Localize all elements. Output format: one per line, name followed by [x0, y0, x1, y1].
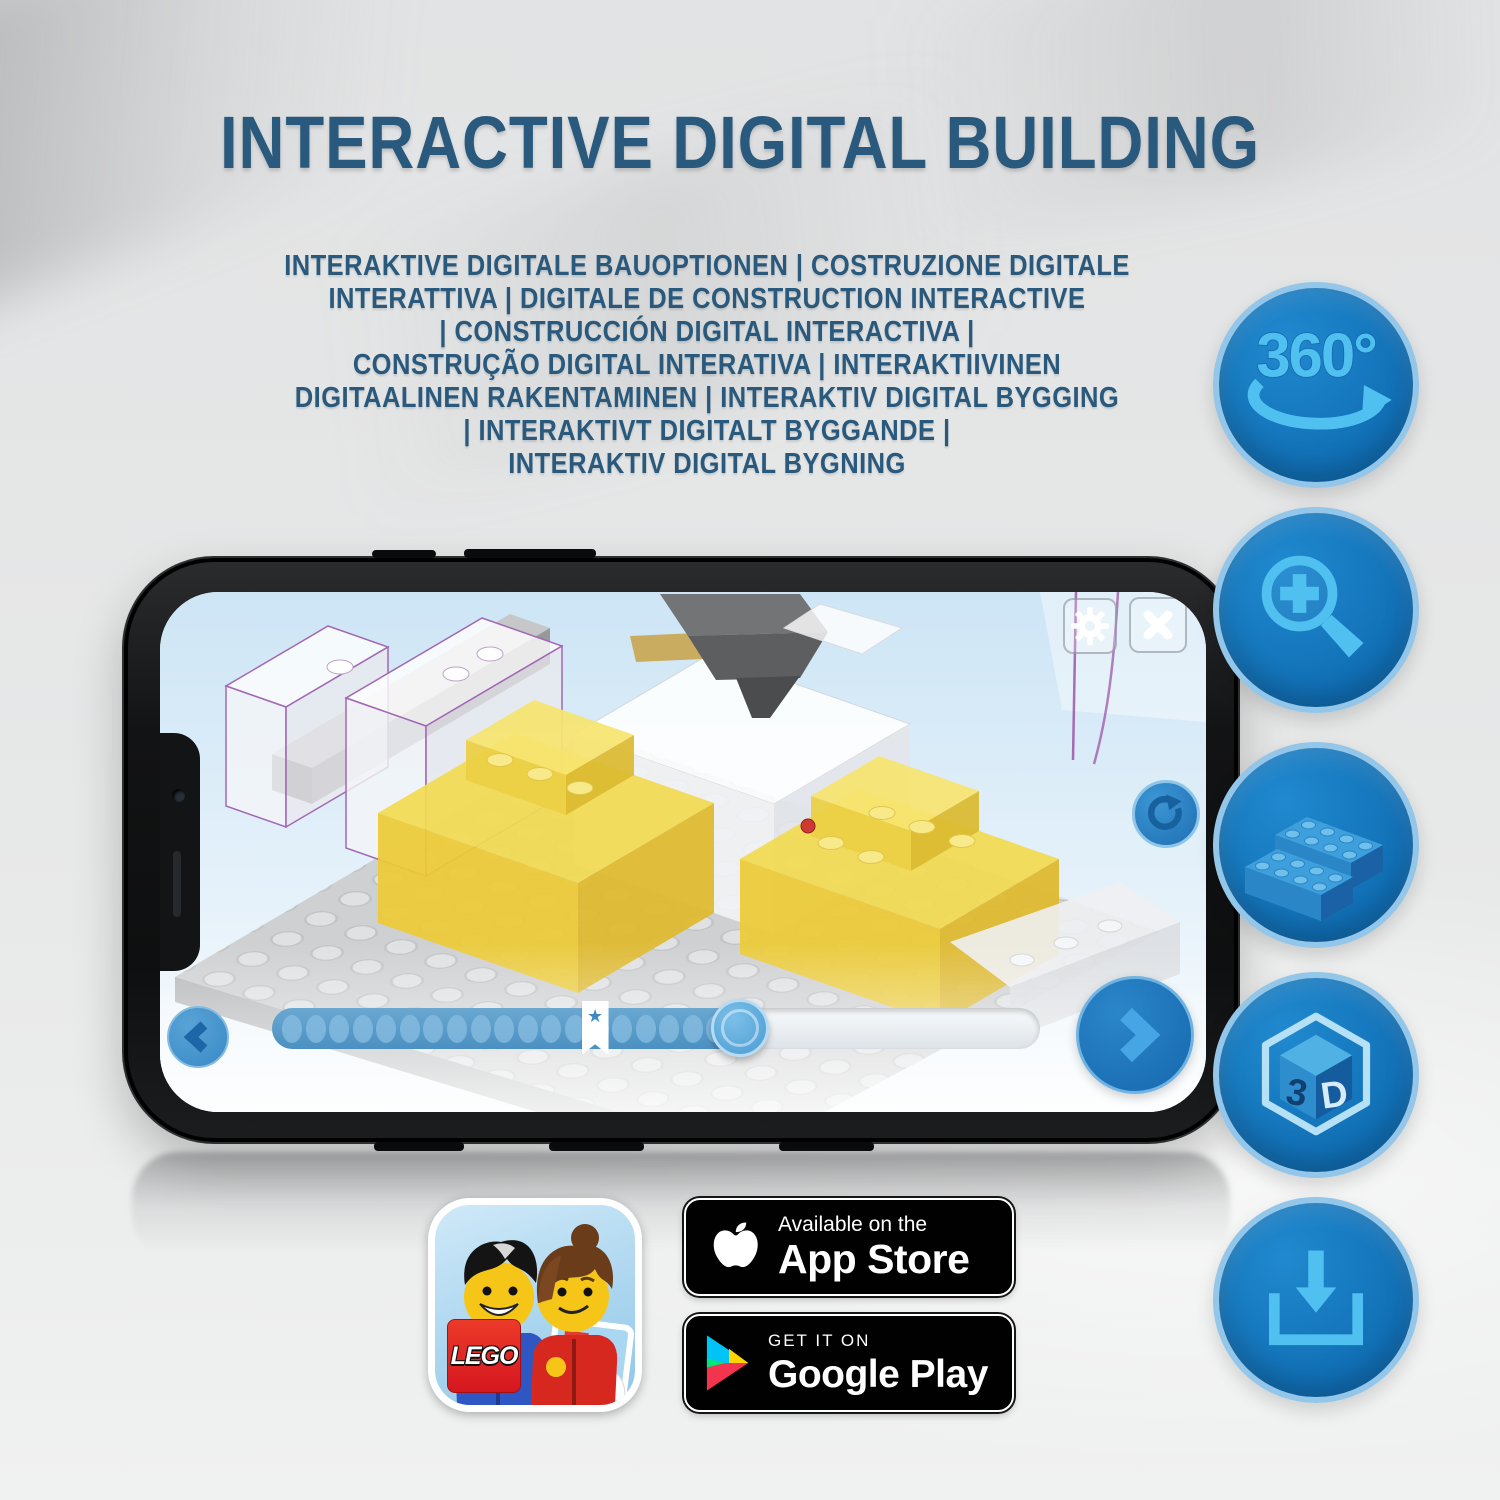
phone-side-button: [374, 1142, 464, 1151]
subtitle-line: | INTERAKTIVT DIGITALT BYGGANDE |: [223, 415, 1191, 448]
rotate-360-label: 360°: [1256, 321, 1376, 390]
rotate-360-icon: 360°: [1236, 310, 1396, 460]
google-play-badge[interactable]: GET IT ON Google Play: [684, 1314, 1014, 1412]
phone-side-button: [464, 549, 596, 558]
subtitle-line: CONSTRUÇÃO DIGITAL INTERATIVA | INTERAKT…: [223, 349, 1191, 382]
subtitle-line: DIGITAALINEN RAKENTAMINEN | INTERAKTIV D…: [223, 382, 1191, 415]
previous-step-button[interactable]: [167, 1006, 229, 1068]
phone-reflection: [132, 1152, 1230, 1262]
close-button[interactable]: [1129, 597, 1187, 653]
phone-side-button: [372, 550, 436, 558]
google-play-label: Google Play: [768, 1353, 988, 1397]
lego-logo: LEGO: [447, 1319, 521, 1393]
subtitle-line: INTERAKTIV DIGITAL BYGNING: [223, 448, 1191, 481]
next-step-button[interactable]: [1076, 976, 1194, 1094]
front-camera: [172, 789, 185, 802]
zoom-in-icon: [1253, 547, 1379, 673]
subtitle-line: INTERAKTIVE DIGITALE BAUOPTIONEN | COSTR…: [223, 250, 1191, 283]
3d-cube-icon: 3 D: [1249, 1008, 1383, 1142]
subtitle-line: INTERATTIVA | DIGITALE DE CONSTRUCTION I…: [223, 283, 1191, 316]
page-title: INTERACTIVE DIGITAL BUILDING: [104, 100, 1377, 185]
feature-zoom: [1213, 507, 1419, 713]
app-store-label: App Store: [778, 1237, 969, 1281]
earpiece-speaker: [173, 851, 181, 917]
phone-notch: [160, 733, 200, 971]
app-store-tagline: Available on the: [778, 1213, 969, 1237]
poster: INTERACTIVE DIGITAL BUILDING INTERAKTIVE…: [0, 0, 1500, 1500]
feature-3d-view: 3 D: [1213, 972, 1419, 1178]
phone-screen: ★: [160, 592, 1206, 1112]
download-icon: [1253, 1237, 1379, 1363]
refresh-icon: [1144, 792, 1188, 836]
brick-icon: [1240, 765, 1392, 925]
google-play-icon: [706, 1335, 752, 1391]
gear-icon: [1071, 607, 1109, 645]
close-icon: [1140, 607, 1176, 643]
settings-button[interactable]: [1063, 598, 1117, 654]
lego-app-icon[interactable]: LEGO: [428, 1198, 642, 1412]
app-store-badge[interactable]: Available on the App Store: [684, 1198, 1014, 1296]
feature-brick-select: [1213, 742, 1419, 948]
phone-side-button: [549, 1142, 644, 1151]
feature-360-rotation: 360°: [1213, 282, 1419, 488]
phone-mockup: ★: [122, 556, 1240, 1144]
feature-download: [1213, 1197, 1419, 1403]
refresh-button[interactable]: [1132, 780, 1200, 848]
slider-fill: [272, 1008, 740, 1049]
subtitle-block: INTERAKTIVE DIGITALE BAUOPTIONEN | COSTR…: [157, 250, 1257, 481]
phone-side-button: [779, 1142, 874, 1151]
google-play-tagline: GET IT ON: [768, 1329, 988, 1353]
slider-dots: [282, 1014, 726, 1043]
slider-handle[interactable]: [711, 999, 769, 1057]
chevron-left-icon: [180, 1018, 216, 1056]
chevron-right-icon: [1102, 1002, 1168, 1068]
subtitle-line: | CONSTRUCCIÓN DIGITAL INTERACTIVA |: [223, 316, 1191, 349]
step-slider[interactable]: ★: [272, 1008, 1040, 1049]
apple-icon: [706, 1217, 762, 1277]
